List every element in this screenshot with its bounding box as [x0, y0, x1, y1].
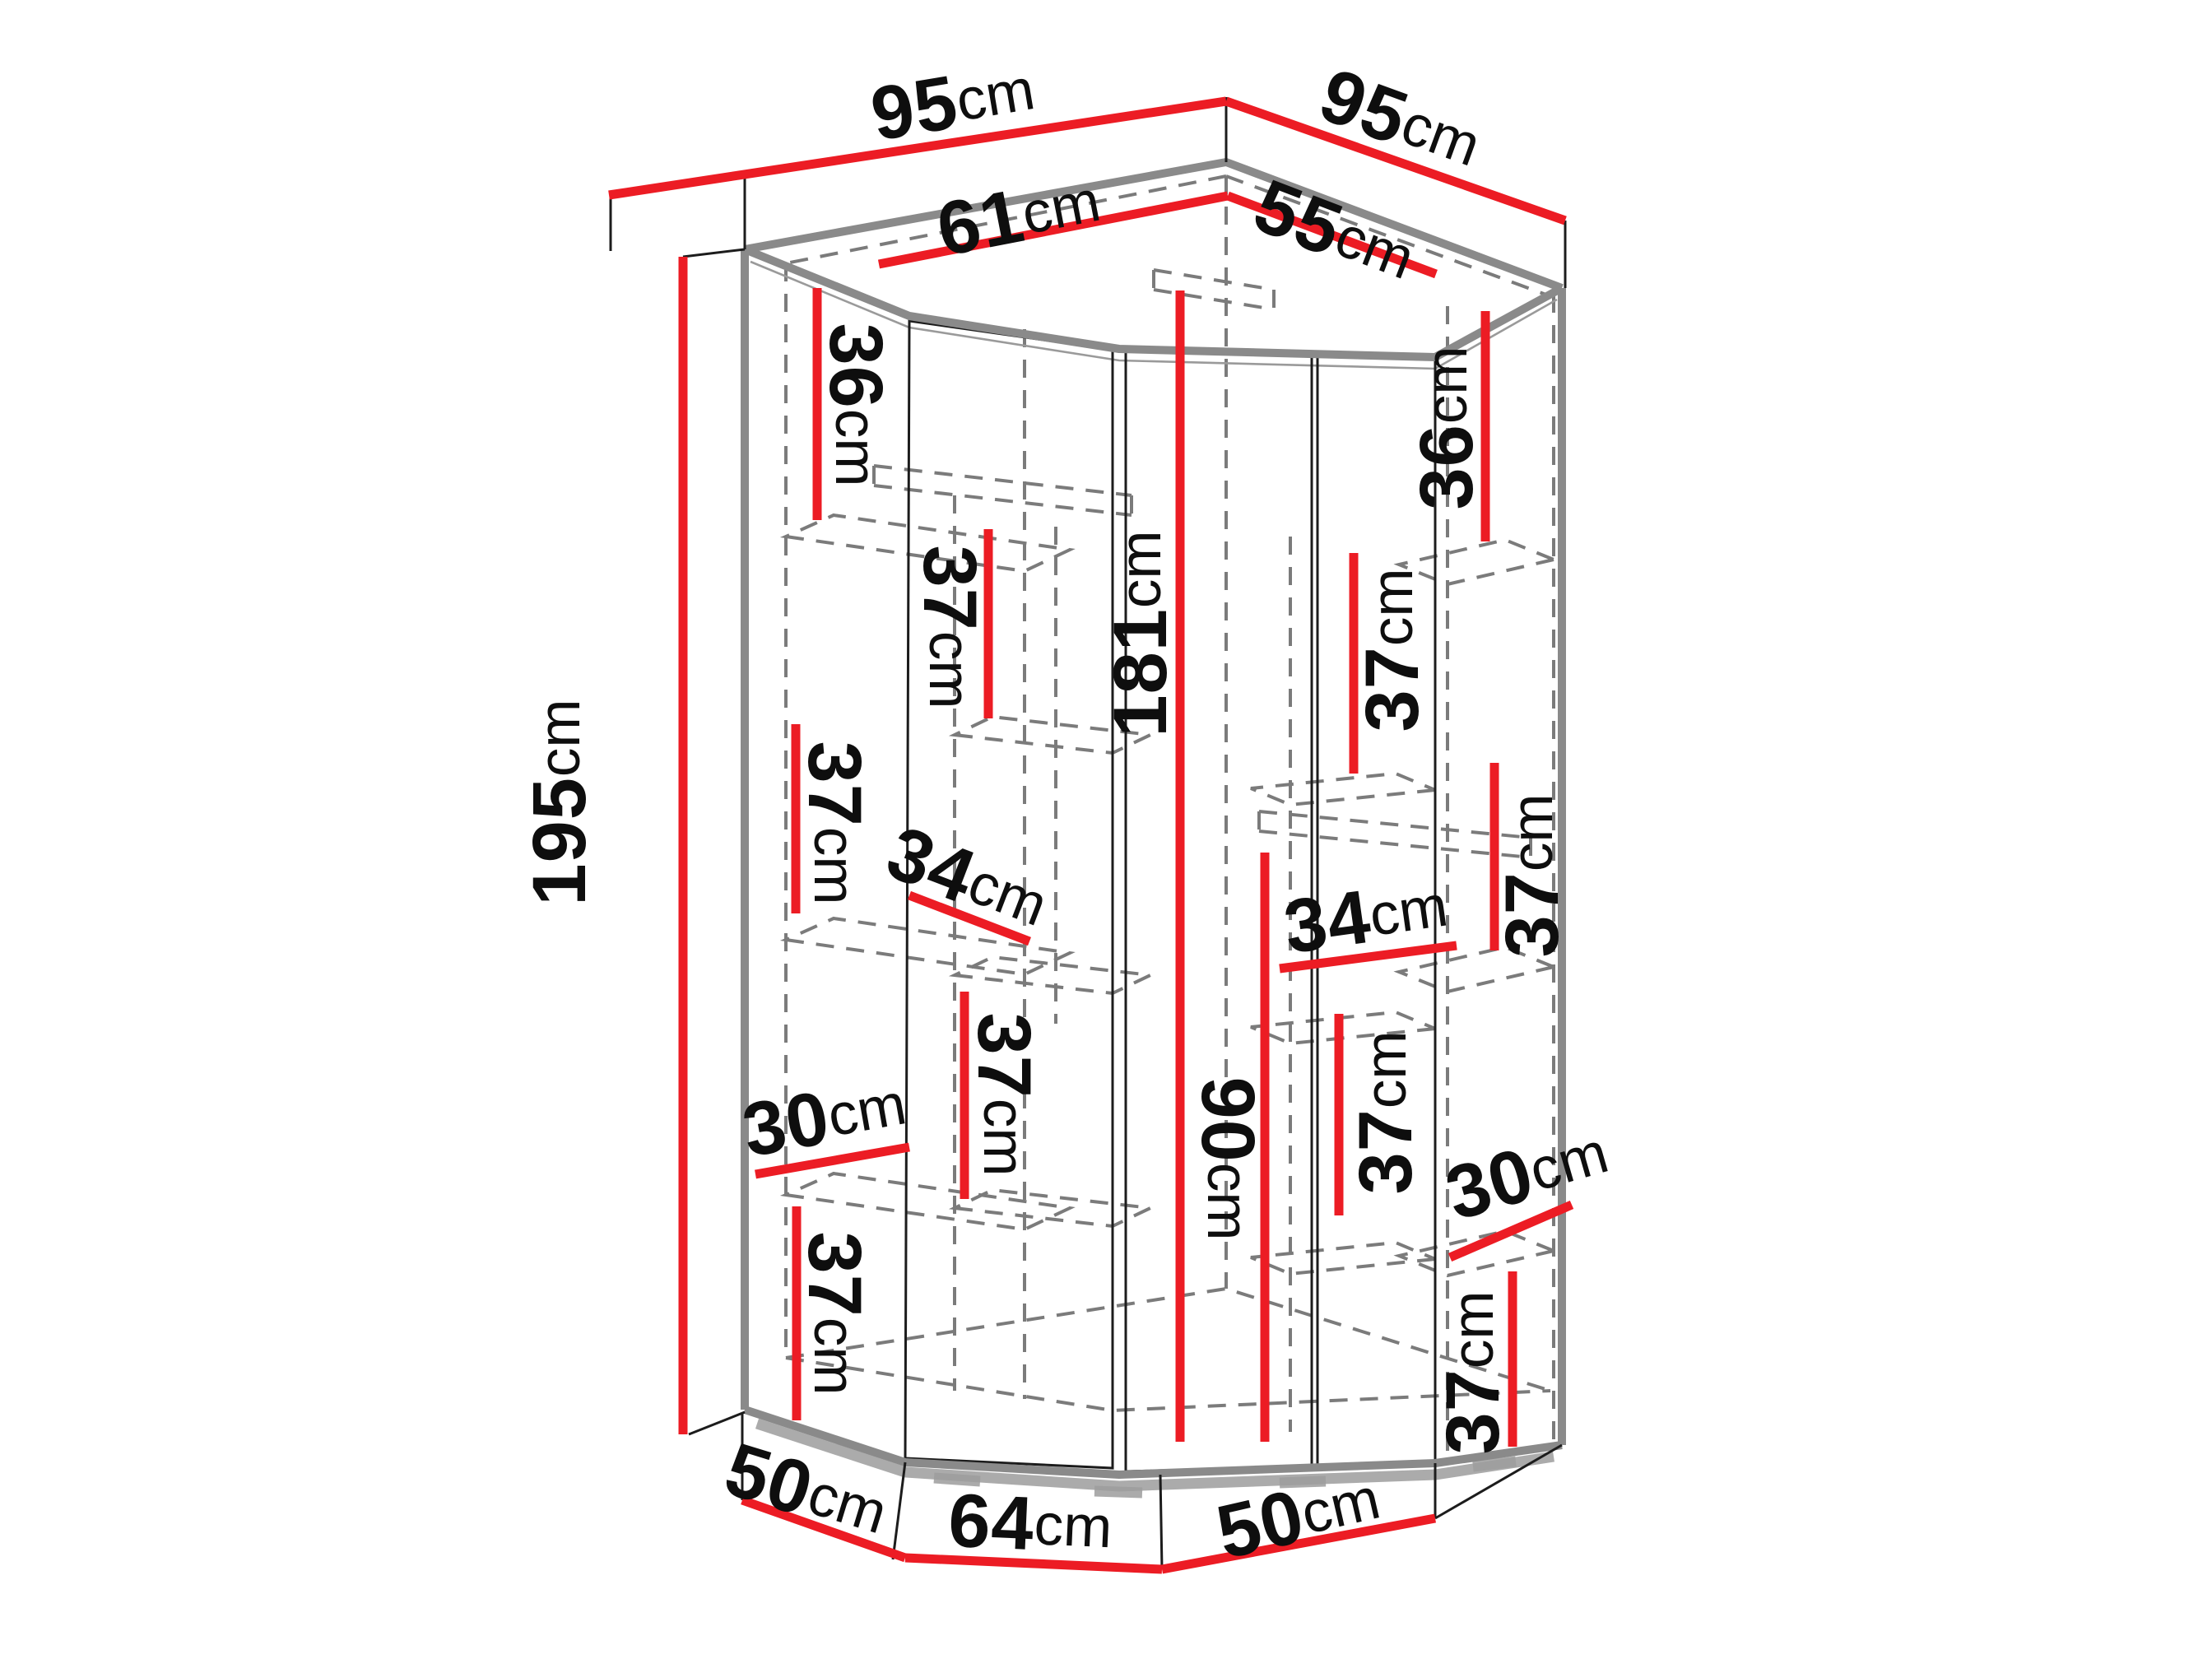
- dim-label-left-37b: 37cm: [792, 741, 876, 905]
- dim-label-195-height: 195cm: [518, 699, 602, 905]
- dim-label-right-36: 36cm: [1405, 346, 1489, 510]
- dim-label-base-50-left: 50cm: [716, 1427, 897, 1555]
- dim-label-left-30: 30cm: [737, 1062, 913, 1173]
- dim-label-base-64: 64cm: [946, 1479, 1113, 1570]
- dim-label-left-36: 36cm: [814, 323, 898, 487]
- wardrobe-dimension-diagram: 95cm 95cm 61cm 55cm 195cm 181cm 90cm 36c…: [0, 0, 2212, 1659]
- diagram-canvas: 95cm 95cm 61cm 55cm 195cm 181cm 90cm 36c…: [0, 0, 2212, 1659]
- dim-label-90-height: 90cm: [1186, 1077, 1270, 1241]
- dim-label-61-inner-left: 61cm: [931, 159, 1108, 272]
- dim-label-left-34: 34cm: [876, 811, 1059, 948]
- dim-label-left-37a: 37cm: [908, 546, 992, 709]
- dim-label-right-37b: 37cm: [1490, 794, 1574, 958]
- witness-lines: [611, 97, 1565, 1434]
- dim-label-95-top-left: 95cm: [865, 47, 1040, 156]
- dim-label-right-30: 30cm: [1437, 1111, 1617, 1237]
- dimension-lines: [609, 101, 1572, 1447]
- dim-label-left-37c: 37cm: [962, 1013, 1046, 1177]
- dim-label-right-37c: 37cm: [1344, 1031, 1428, 1195]
- dim-label-left-37d: 37cm: [792, 1232, 876, 1396]
- dim-label-right-37a: 37cm: [1350, 569, 1434, 732]
- dim-label-right-37d: 37cm: [1431, 1291, 1515, 1455]
- dim-label-181-height: 181cm: [1099, 530, 1183, 737]
- dim-label-55-inner-right: 55cm: [1243, 164, 1426, 301]
